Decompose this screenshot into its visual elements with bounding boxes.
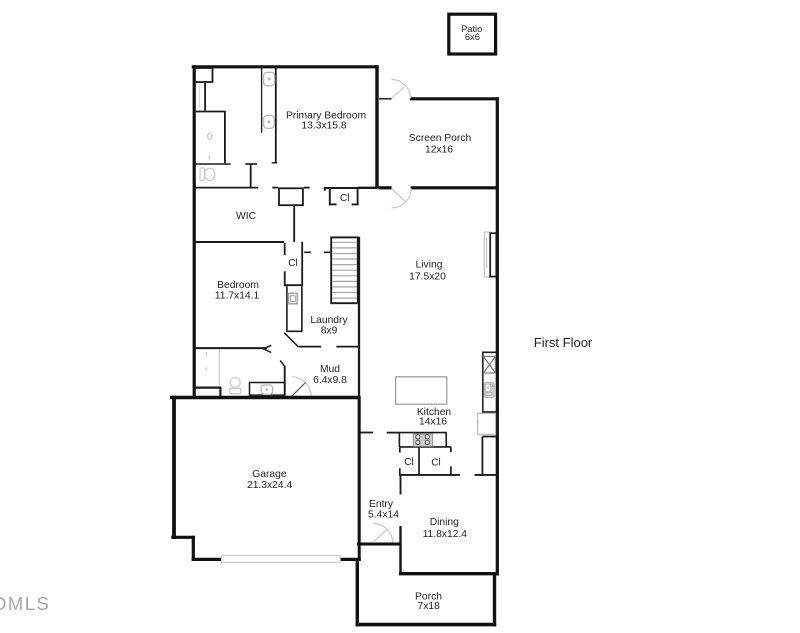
- svg-text:11.8x12.4: 11.8x12.4: [423, 529, 468, 540]
- svg-text:Mud: Mud: [320, 364, 340, 375]
- svg-text:6x6: 6x6: [465, 32, 480, 42]
- svg-text:DMLS: DMLS: [0, 593, 50, 614]
- svg-text:12x16: 12x16: [425, 145, 453, 156]
- svg-text:17.5x20: 17.5x20: [409, 272, 446, 283]
- svg-text:Cl: Cl: [288, 258, 297, 269]
- svg-text:Entry: Entry: [369, 499, 394, 510]
- svg-text:Living: Living: [416, 260, 443, 271]
- svg-text:WIC: WIC: [236, 211, 257, 222]
- svg-text:14x16: 14x16: [419, 417, 447, 428]
- svg-text:5.4x14: 5.4x14: [368, 510, 399, 521]
- svg-text:11.7x14.1: 11.7x14.1: [215, 290, 260, 301]
- svg-text:Cl: Cl: [431, 458, 440, 469]
- svg-text:First Floor: First Floor: [534, 335, 593, 350]
- svg-text:Cl: Cl: [404, 457, 413, 468]
- svg-text:8x9: 8x9: [321, 326, 338, 337]
- svg-text:13.3x15.8: 13.3x15.8: [301, 121, 347, 132]
- svg-text:Dining: Dining: [430, 517, 459, 528]
- svg-text:21.3x24.4: 21.3x24.4: [247, 480, 293, 491]
- svg-text:Cl: Cl: [340, 193, 349, 204]
- svg-text:7x18: 7x18: [418, 601, 441, 612]
- svg-text:Screen Porch: Screen Porch: [409, 133, 472, 144]
- svg-text:6.4x9.8: 6.4x9.8: [313, 375, 347, 386]
- svg-text:Garage: Garage: [252, 469, 287, 480]
- svg-text:Laundry: Laundry: [310, 315, 348, 326]
